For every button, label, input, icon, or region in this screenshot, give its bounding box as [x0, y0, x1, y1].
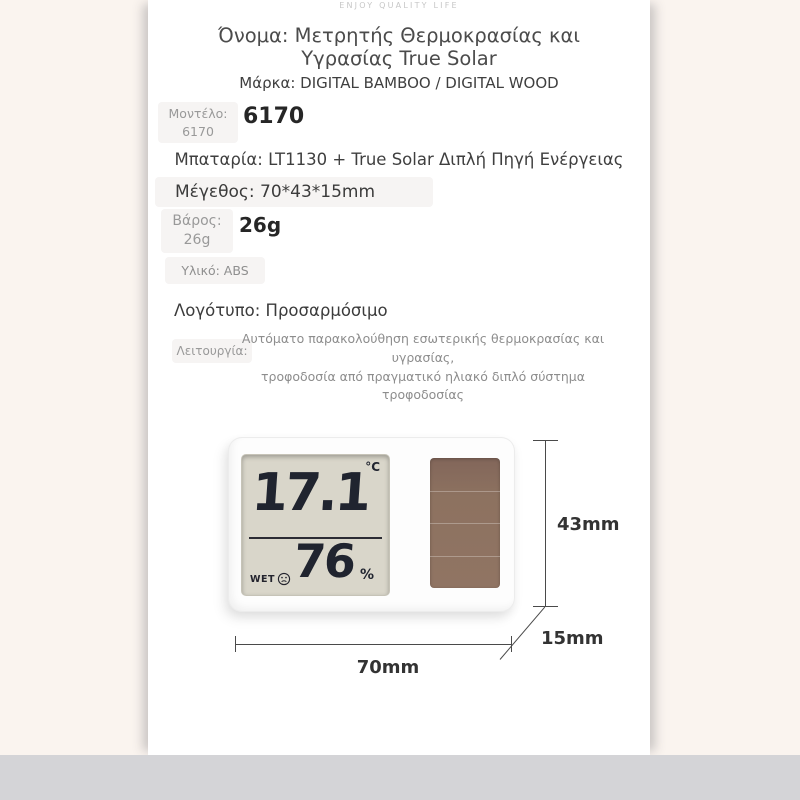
weight-value: 26g — [239, 213, 281, 237]
humidity-unit: % — [360, 567, 374, 583]
solar-cell — [430, 523, 500, 556]
material-spec: Υλικό: ABS — [165, 257, 265, 284]
model-value: 6170 — [243, 104, 304, 129]
function-line-1: Αυτόματο παρακολούθηση εσωτερικής θερμοκ… — [226, 330, 620, 368]
sad-face-icon — [277, 572, 291, 586]
function-line-2: τροφοδοσία από πραγματικό ηλιακό διπλό σ… — [226, 368, 620, 406]
solar-cell — [430, 458, 500, 491]
model-label-chip: Μοντέλο: 6170 — [158, 102, 238, 143]
size-spec: Μέγεθος: 70*43*15mm — [155, 177, 433, 207]
dim-height-line — [545, 441, 546, 606]
temperature-reading: 17.1 — [249, 455, 371, 533]
footer-bar — [0, 755, 800, 800]
solar-panel — [430, 458, 500, 588]
dim-height-label: 43mm — [557, 514, 620, 535]
product-brand: Μάρκα: DIGITAL BAMBOO / DIGITAL WOOD — [148, 74, 650, 92]
wet-indicator: WET — [250, 572, 291, 586]
dim-width-line — [235, 644, 512, 645]
logo-spec: Λογότυπο: Προσαρμόσιμο — [174, 301, 388, 320]
dim-width-tick-left — [235, 636, 236, 652]
device-illustration: 17.1 °C 76 % WET — [228, 437, 515, 612]
model-label-value: 6170 — [158, 123, 238, 141]
weight-label-chip: Βάρος: 26g — [161, 209, 233, 253]
weight-label-value: 26g — [161, 231, 233, 250]
weight-label: Βάρος: — [161, 212, 233, 231]
function-description: Αυτόματο παρακολούθηση εσωτερικής θερμοκ… — [226, 330, 620, 405]
brand-tagline: ENJOY QUALITY LIFE — [148, 1, 650, 10]
temperature-unit: °C — [365, 460, 380, 474]
model-label: Μοντέλο: — [158, 105, 238, 123]
lcd-screen: 17.1 °C 76 % WET — [242, 455, 389, 595]
dim-height-cap-top — [533, 440, 558, 441]
battery-spec: Μπαταρία: LT1130 + True Solar Διπλή Πηγή… — [148, 150, 650, 169]
content-panel: ENJOY QUALITY LIFE Όνομα: Μετρητής Θερμο… — [148, 0, 650, 755]
dim-width-label: 70mm — [318, 657, 458, 678]
humidity-reading: 76 — [292, 531, 356, 591]
wet-label: WET — [250, 574, 275, 585]
solar-cell — [430, 556, 500, 589]
humidity-section: 76 % WET — [242, 539, 389, 595]
product-title: Όνομα: Μετρητής Θερμοκρασίας και Υγρασία… — [174, 24, 624, 70]
solar-cell — [430, 491, 500, 524]
dim-depth-line — [500, 607, 546, 660]
dim-depth-label: 15mm — [541, 628, 604, 649]
temperature-section: 17.1 °C — [242, 455, 389, 535]
